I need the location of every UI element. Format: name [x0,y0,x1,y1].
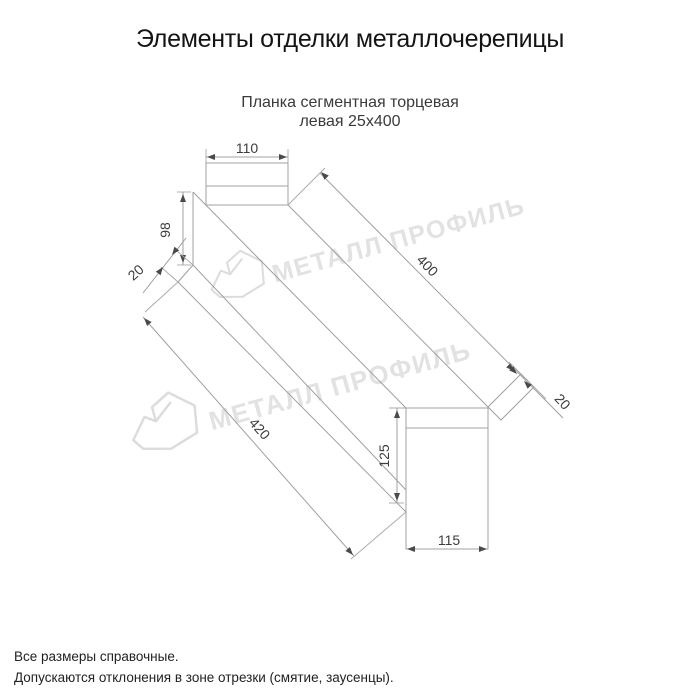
left-fold-edge [178,265,193,282]
footer-note-line2: Допускаются отклонения в зоне отрезки (с… [14,667,394,688]
right-end-face [406,408,488,549]
watermark-lower: МЕТАЛЛ ПРОФИЛЬ [124,312,475,458]
watermark-upper: МЕТАЛЛ ПРОФИЛЬ [204,174,529,305]
dim-label-115: 115 [438,532,461,548]
dimension-20-right: 20 [509,362,574,413]
technical-drawing: МЕТАЛЛ ПРОФИЛЬ МЕТАЛЛ ПРОФИЛЬ [0,0,700,700]
dim-label-110: 110 [236,140,259,156]
metal-profil-logo-icon [124,387,205,458]
dimension-125: 125 [376,408,406,503]
footer-note-line1: Все размеры справочные. [14,646,394,667]
dimension-110: 110 [206,140,288,163]
dim-label-98: 98 [157,222,173,238]
metal-profil-logo-icon [204,246,270,304]
watermark-text: МЕТАЛЛ ПРОФИЛЬ [269,192,528,289]
dimension-115: 115 [406,532,488,552]
dim-label-400: 400 [414,252,442,280]
dim-label-125: 125 [376,444,392,468]
left-end-face [206,163,288,205]
page: Элементы отделки металлочерепицы Планка … [0,0,700,700]
footer-notes: Все размеры справочные. Допускаются откл… [14,646,394,688]
dim-label-20-left: 20 [125,261,147,283]
strip-edge-bottom-fold [178,282,406,512]
right-fold-flap [488,374,534,420]
strip-edge-top-left [193,192,406,408]
